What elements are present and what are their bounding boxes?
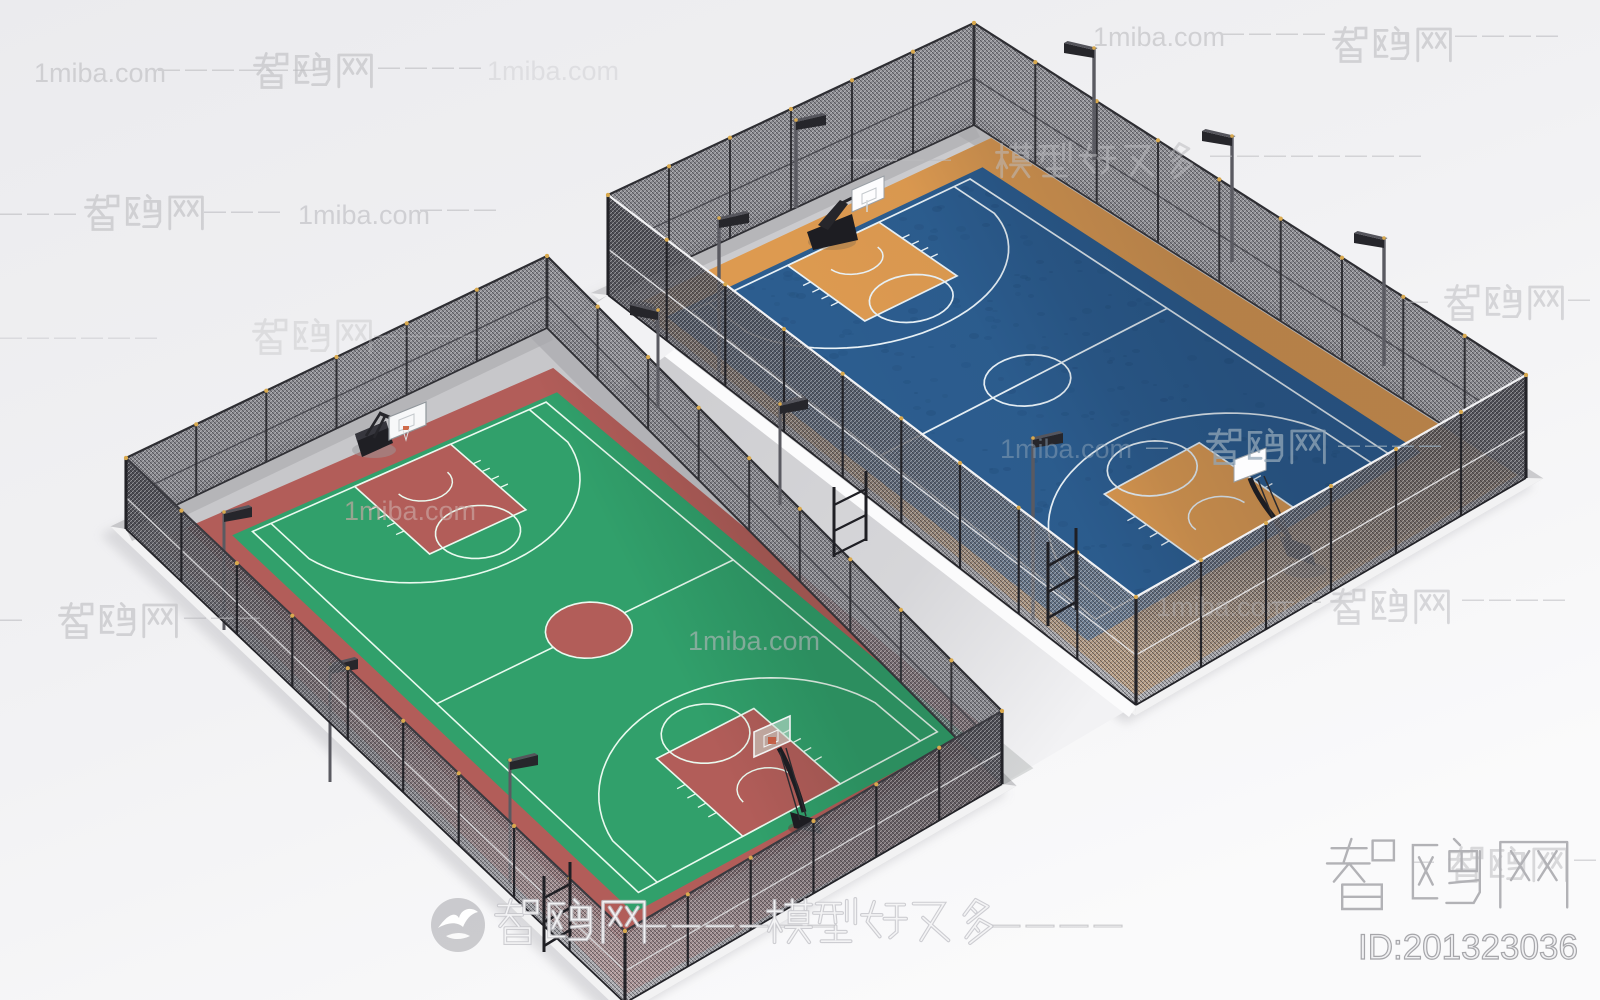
svg-text:————: ———— xyxy=(1455,22,1563,47)
svg-text:—: — xyxy=(0,606,27,631)
svg-text:1miba.com: 1miba.com xyxy=(34,58,166,88)
svg-text:————: ———— xyxy=(1222,20,1330,45)
svg-text:—: — xyxy=(1406,288,1433,313)
svg-text:1miba.com: 1miba.com xyxy=(298,200,430,230)
svg-text:————: ———— xyxy=(848,146,956,171)
svg-text:————: ———— xyxy=(992,908,1128,939)
svg-text:————: ———— xyxy=(378,54,486,79)
svg-text:1miba.com: 1miba.com xyxy=(1000,434,1132,464)
svg-text:————: ———— xyxy=(374,322,482,347)
svg-text:——: —— xyxy=(1272,588,1326,613)
svg-text:1miba.com: 1miba.com xyxy=(1093,22,1225,52)
svg-text:———: ——— xyxy=(420,196,501,221)
svg-text:————————: ———————— xyxy=(1210,142,1426,167)
svg-text:—: — xyxy=(1574,846,1600,871)
svg-text:1miba.com: 1miba.com xyxy=(344,496,476,526)
svg-text:———: ——— xyxy=(0,200,81,225)
svg-text:ID:201323036: ID:201323036 xyxy=(1358,928,1578,967)
svg-text:————: ———— xyxy=(1338,432,1446,457)
svg-text:————: ———— xyxy=(1462,586,1570,611)
svg-text:1miba.com: 1miba.com xyxy=(688,626,820,656)
svg-text:—: — xyxy=(1568,286,1595,311)
svg-text:1miba.com: 1miba.com xyxy=(487,56,619,86)
svg-text:———: ——— xyxy=(184,604,265,629)
svg-text:1miba.com: 1miba.com xyxy=(1156,592,1288,622)
svg-text:——————: —————— xyxy=(0,324,162,349)
svg-text:——————: —————— xyxy=(638,908,842,939)
svg-text:—: — xyxy=(1146,434,1173,459)
svg-text:———: ——— xyxy=(204,198,285,223)
